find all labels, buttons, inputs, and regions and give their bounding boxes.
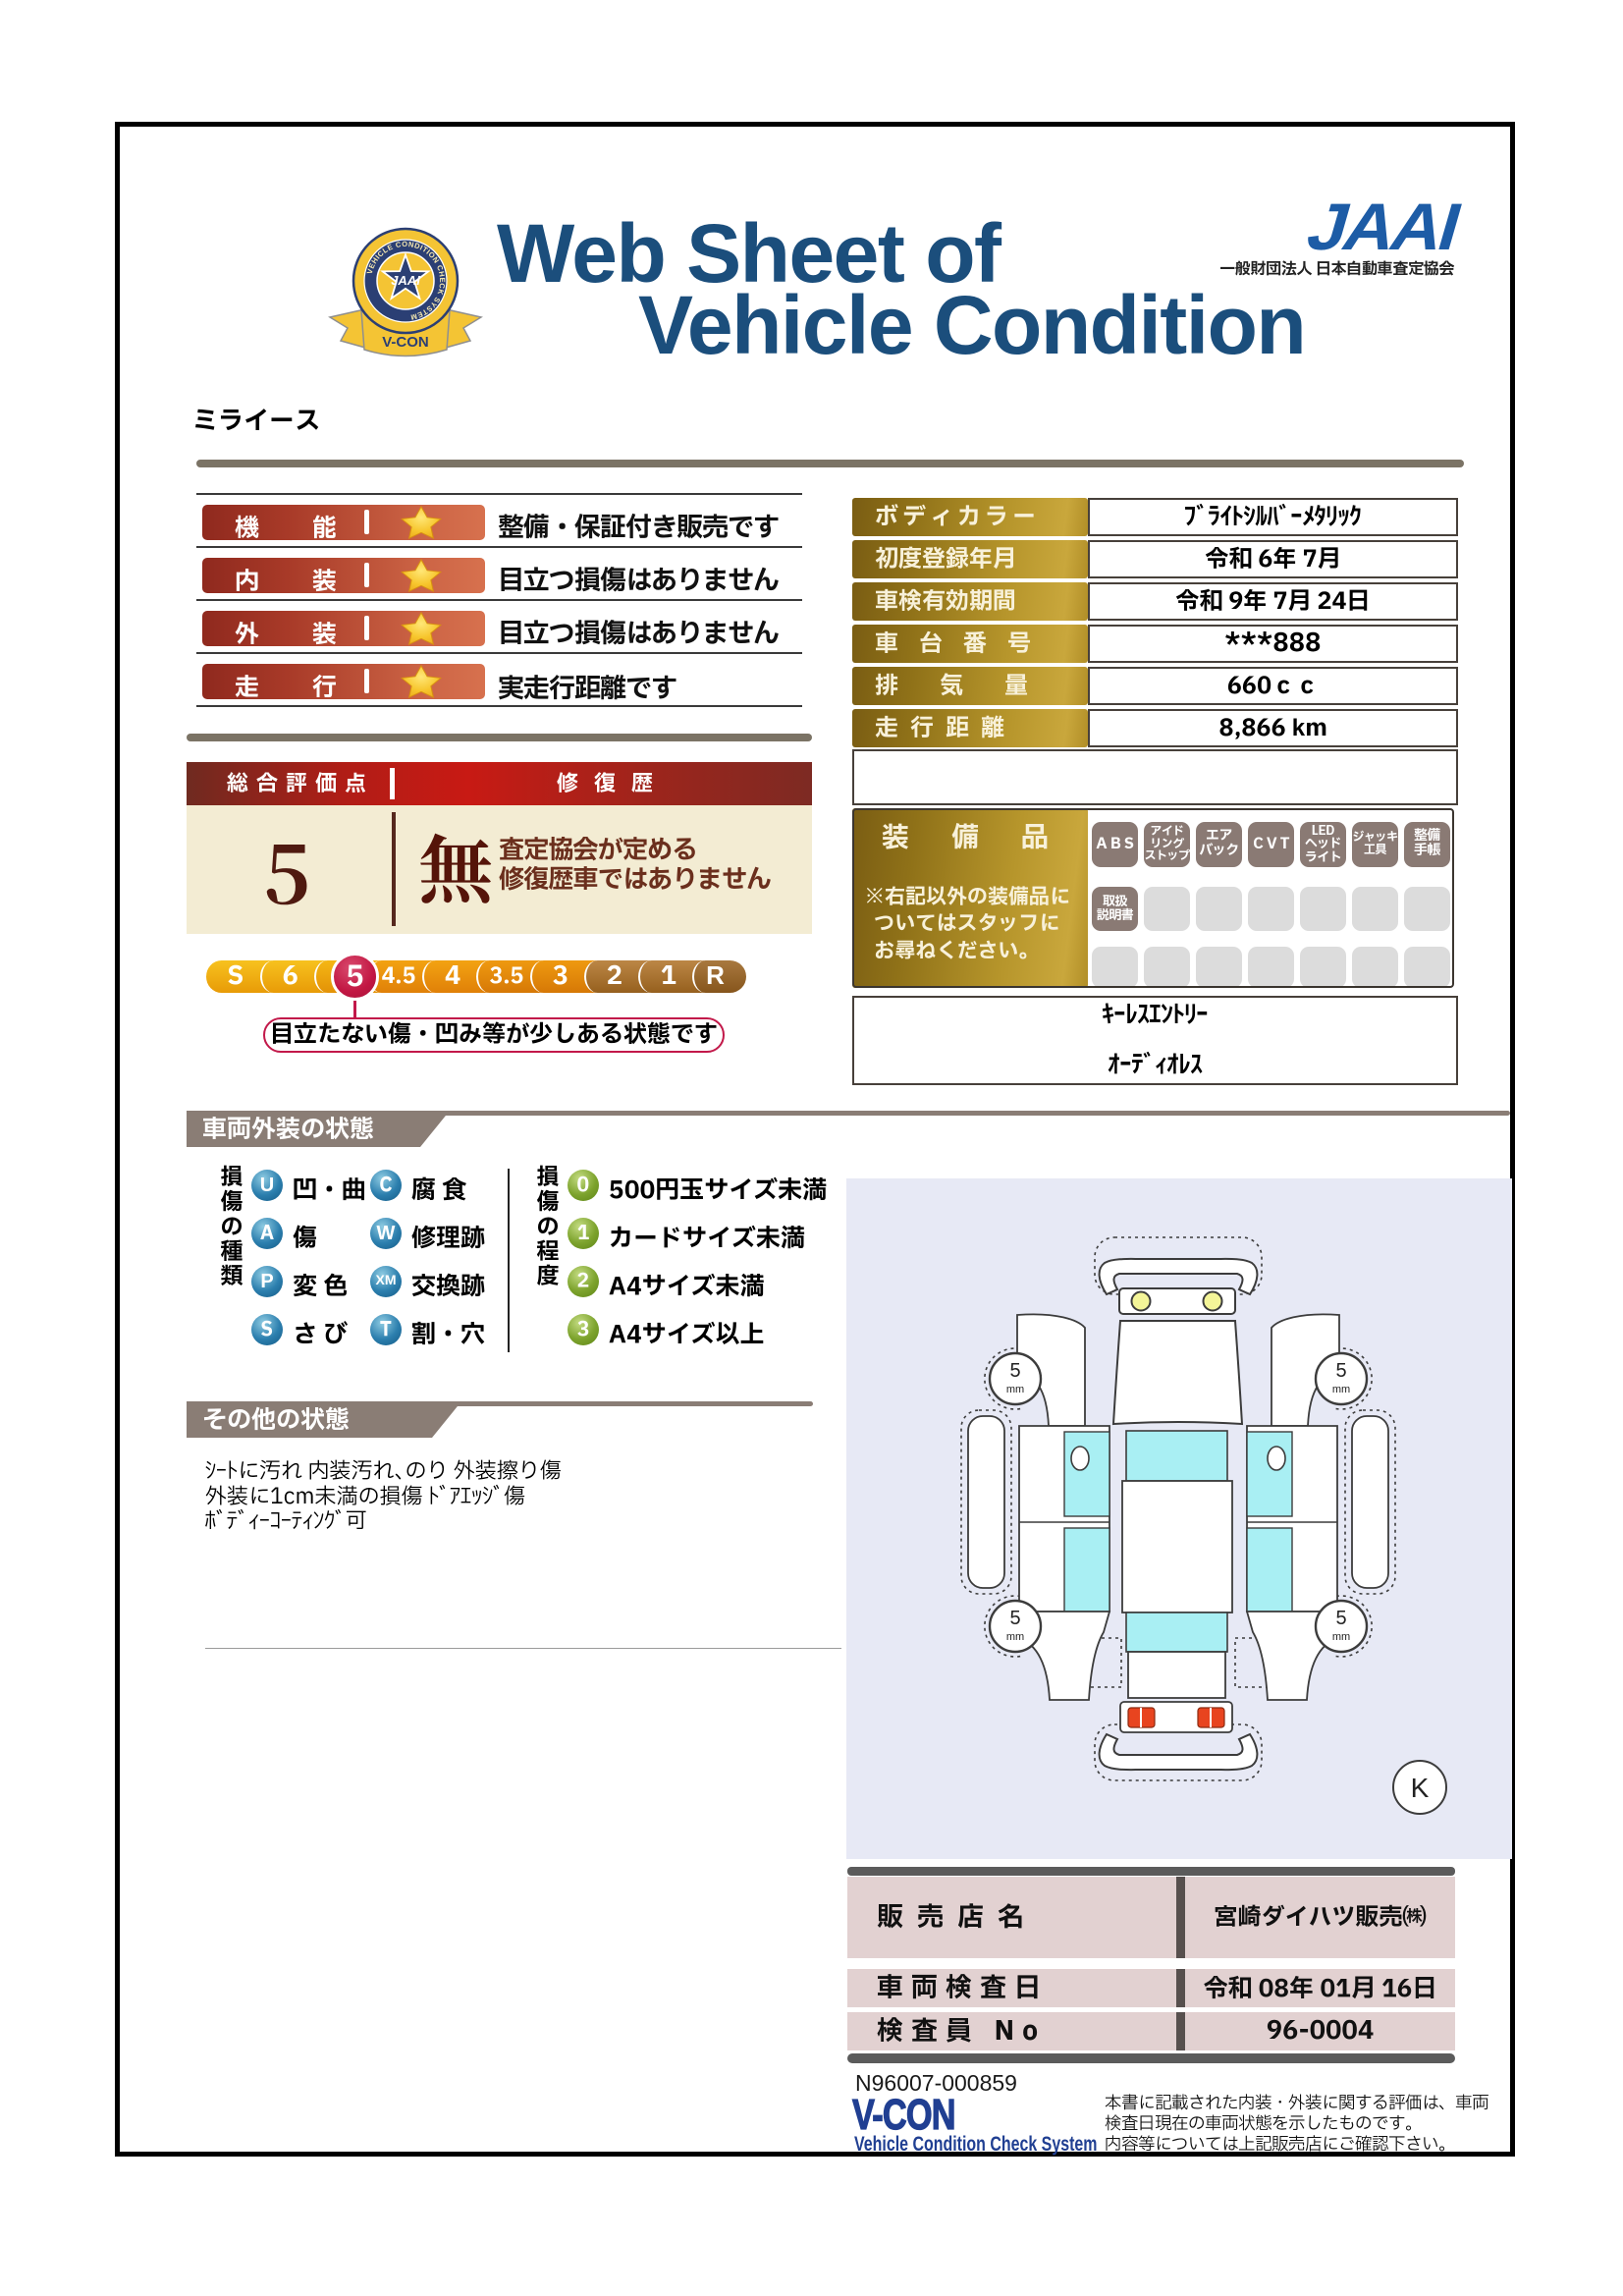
svg-text:V-CON: V-CON	[382, 334, 429, 351]
svg-text:JAAI: JAAI	[391, 273, 420, 288]
svg-text:K: K	[1411, 1773, 1430, 1803]
svg-text:JAAI: JAAI	[1302, 193, 1468, 263]
